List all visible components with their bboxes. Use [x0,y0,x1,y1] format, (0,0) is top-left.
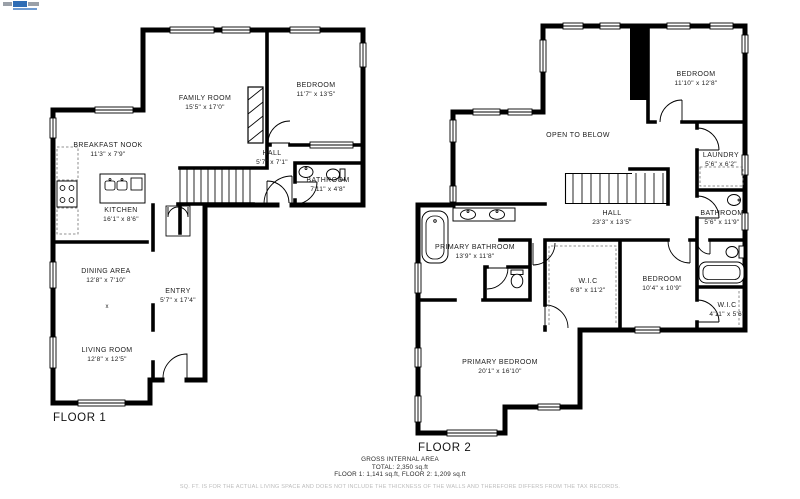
bedroom2top-door-arc [660,100,682,122]
wic1-shelves [549,246,616,325]
primary-bathtub-icon [422,211,448,263]
bathroom1-sink-icon [299,167,313,178]
bedroom1-door-arc [268,121,290,143]
floor2-title: FLOOR 2 [418,442,471,454]
laundry-door-arc [697,128,719,150]
laundry-counter [700,167,743,186]
tub-area-door-arc [697,241,710,254]
fireplace [248,87,263,143]
windows-floor1 [50,27,366,406]
toilet-room-door-arc [487,268,508,289]
disclaimer-text: SQ. FT. IS FOR THE ACTUAL LIVING SPACE A… [0,484,800,490]
bathroom1-door-arc [295,182,317,204]
floorplan-svg [0,0,800,499]
hall-exterior-door-arc [264,176,292,204]
bathroom2-sink-icon [728,195,741,206]
wic1-door-arc [545,305,568,328]
area-summary: GROSS INTERNAL AREA TOTAL: 2,350 sq.ft F… [0,456,800,479]
floor1-exterior-walls [53,30,363,403]
stairs-floor2 [565,173,668,204]
bathroom1-toilet-icon [327,169,346,180]
bedroom2right-door-arc [668,241,690,263]
floor2-plan [415,23,748,436]
floor2-wall-mass [630,26,648,100]
summary-heading: GROSS INTERNAL AREA [0,456,800,464]
floor1-plan [50,27,366,406]
floor2-interior-walls [418,26,745,330]
front-door-arc [163,354,187,378]
hall-stairs-door-arc [267,181,289,203]
bathroom2-bathtub-icon [699,262,744,283]
doors-floor2 [487,100,719,328]
primary-vanity-sinks [453,208,515,221]
bathroom2-toilet-icon [726,246,744,258]
bathroom2-door-arc [697,196,719,218]
primary-toilet-icon [511,270,523,288]
entry-closet-doors [166,206,190,236]
summary-total: TOTAL: 2,350 sq.ft [0,464,800,472]
kitchen-island [100,174,145,203]
floor1-title: FLOOR 1 [53,412,106,424]
doors-floor1 [163,121,317,378]
wic2-door-arc [697,300,719,322]
floorplan-canvas: FAMILY ROOM15'5" x 17'0" BEDROOM11'7" x … [0,0,800,499]
floor1-x-marker: x [106,304,109,310]
summary-floors: FLOOR 1: 1,141 sq.ft, FLOOR 2: 1,209 sq.… [0,471,800,479]
stairs-floor1 [180,169,250,203]
stove-icon [57,147,78,234]
